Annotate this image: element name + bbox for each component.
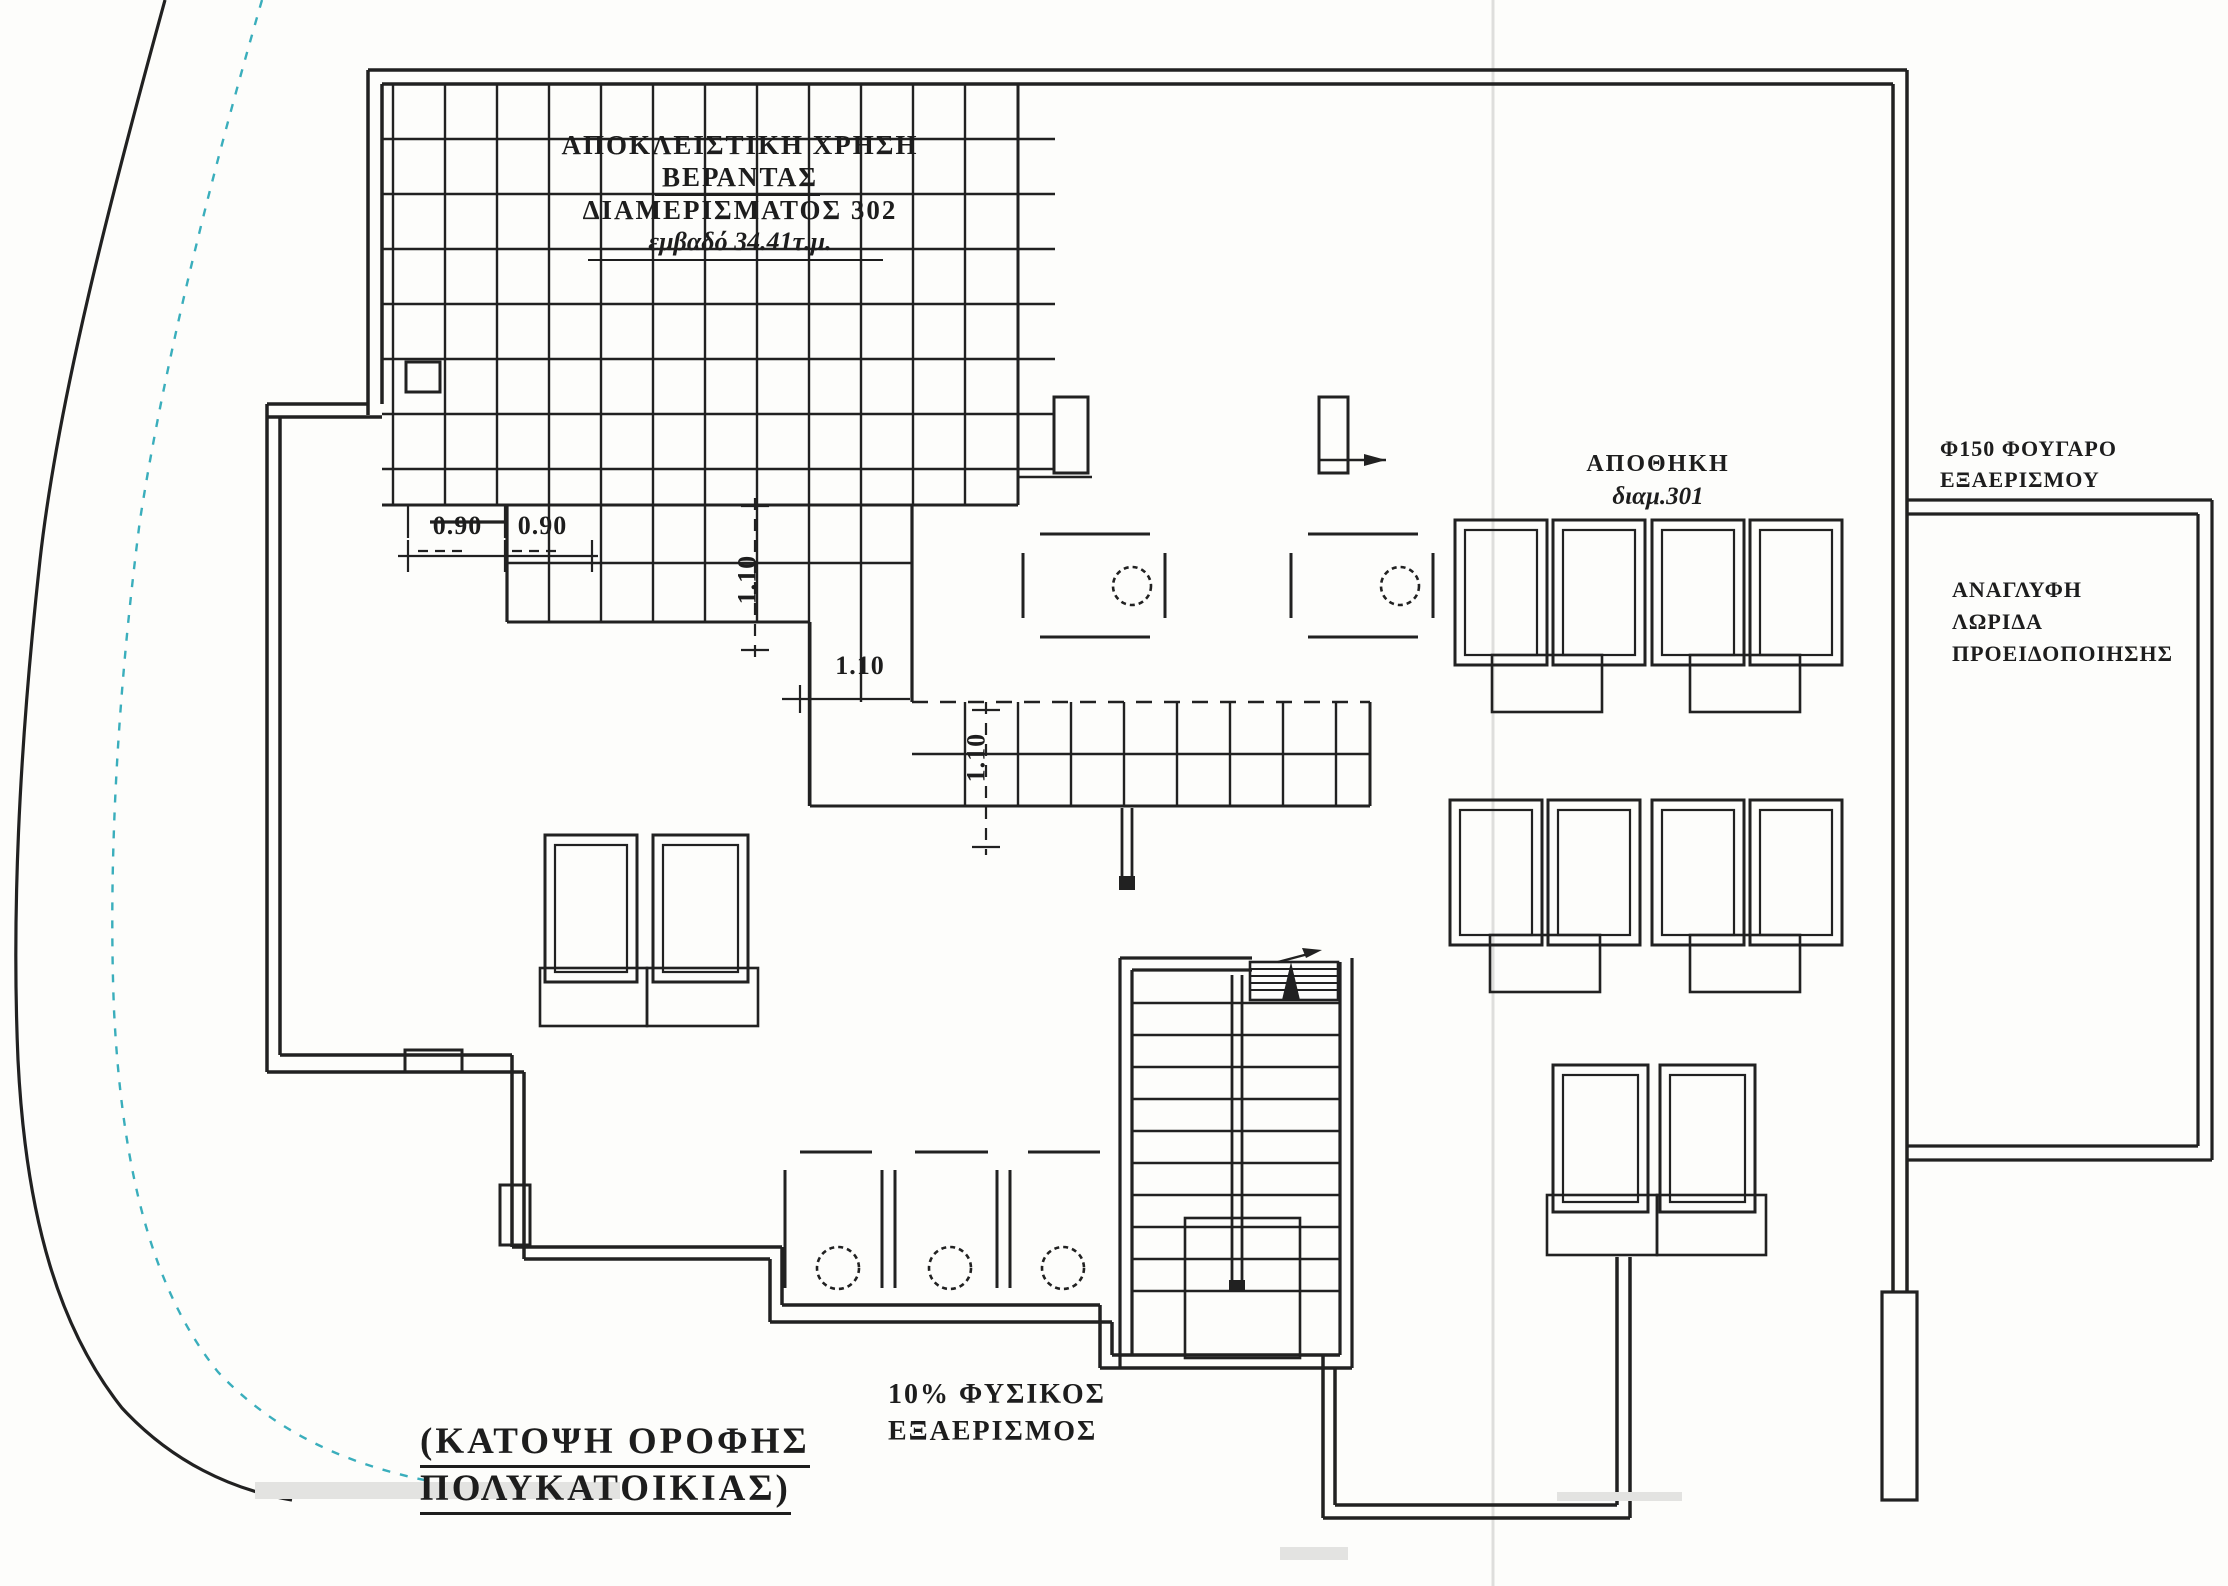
- veranda-note-line1: ΑΠΟΚΛΕΙΣΤΙΚΗ ΧΡΗΣΗ: [540, 131, 940, 159]
- skylight-left-pair: [540, 835, 758, 1026]
- dim-110-corridor-vertical: 1.10: [962, 718, 989, 798]
- flue-rect-left: [1018, 397, 1092, 477]
- skylight-row2: [1450, 800, 1842, 992]
- warning-strip-line2: ΛΩΡΙΔΑ: [1952, 610, 2043, 633]
- storage-note-line2: διαμ.301: [1558, 484, 1758, 510]
- vent-units-bottom: [785, 1152, 1100, 1289]
- drawing-sheet: ΑΠΟΚΛΕΙΣΤΙΚΗ ΧΡΗΣΗ ΒΕΡΑΝΤΑΣ ΔΙΑΜΕΡΙΣΜΑΤΟ…: [0, 0, 2228, 1586]
- drawing-title-line1: (ΚΑΤΟΨΗ ΟΡΟΦΗΣ: [420, 1423, 810, 1468]
- vent-unit-top-left: [1023, 534, 1165, 637]
- property-boundary-line: [16, 0, 292, 1500]
- veranda-note-line3: ΔΙΑΜΕΡΙΣΜΑΤΟΣ 302: [540, 196, 940, 224]
- bottom-right-room-walls: [1323, 1257, 1630, 1518]
- terrace-tile-grid: [382, 84, 1370, 806]
- flue-note-line2: ΕΞΑΕΡΙΣΜΟΥ: [1940, 468, 2100, 491]
- floor-plan-drawing: [0, 0, 2228, 1586]
- warning-strip-line3: ΠΡΟΕΙΔΟΠΟΙΗΣΗΣ: [1952, 642, 2173, 665]
- scan-smudge: [1280, 1547, 1348, 1560]
- drawing-title-line2: ΠΟΛΥΚΑΤΟΙΚΙΑΣ): [420, 1470, 791, 1515]
- stair-treads: [1132, 1003, 1340, 1291]
- dim-110-corridor: 1.10: [820, 652, 900, 679]
- dim-090-b: 0.90: [500, 512, 585, 539]
- skylight-row1: [1455, 520, 1842, 712]
- dimension-lines: [398, 498, 1000, 855]
- veranda-note-line2: ΒΕΡΑΝΤΑΣ: [540, 163, 940, 191]
- veranda-note-area: εμβαδό 34.41τ.μ.: [540, 228, 940, 255]
- setback-dashed-line: [112, 0, 434, 1482]
- dim-110-band-vertical: 1.10: [733, 540, 760, 620]
- skylight-row3: [1547, 1065, 1766, 1255]
- dim-090-a: 0.90: [415, 512, 500, 539]
- stair-entry-hatch: [1250, 948, 1338, 1000]
- ventilation-note-line2: ΕΞΑΕΡΙΣΜΟΣ: [888, 1417, 1097, 1446]
- warning-strip-line1: ΑΝΑΓΛΥΦΗ: [1952, 578, 2082, 601]
- storage-note-line1: ΑΠΟΘΗΚΗ: [1558, 452, 1758, 477]
- flue-note-line1: Φ150 ΦΟΥΓΑΡΟ: [1940, 437, 2117, 460]
- underline: [588, 259, 883, 261]
- flue-rect-right: [1319, 397, 1386, 473]
- chimney-pier: [1882, 1292, 1917, 1500]
- ventilation-note-line1: 10% ΦΥΣΙΚΟΣ: [888, 1380, 1106, 1409]
- vent-unit-top-right: [1291, 534, 1433, 637]
- scan-smudge: [1557, 1492, 1682, 1501]
- stairwell: [1119, 808, 1352, 1368]
